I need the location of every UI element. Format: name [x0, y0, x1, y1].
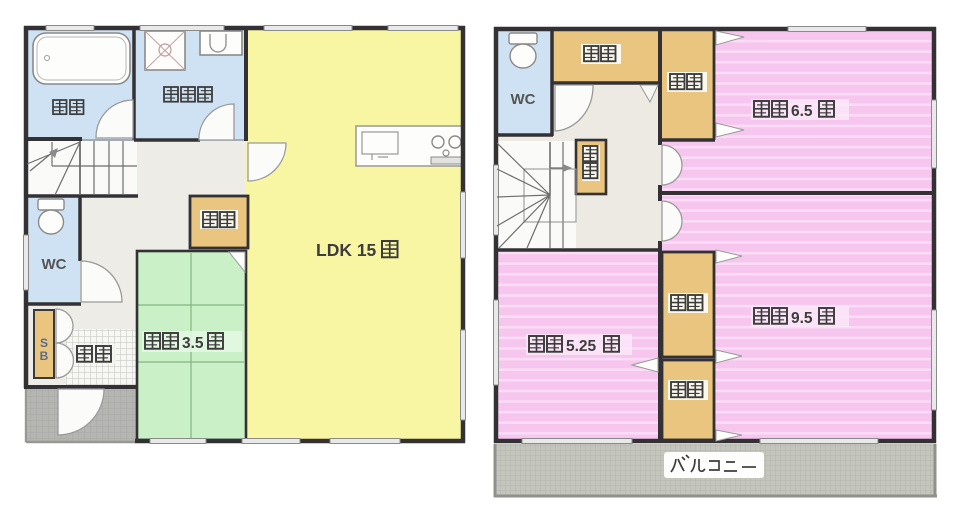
svg-text:9.5: 9.5 — [791, 310, 813, 327]
svg-text:WC: WC — [511, 91, 536, 108]
svg-text:5.25: 5.25 — [566, 338, 597, 355]
svg-text:B: B — [40, 349, 49, 363]
svg-text:3.5: 3.5 — [182, 335, 204, 352]
svg-text:WC: WC — [42, 256, 67, 273]
svg-text:S: S — [40, 336, 48, 350]
svg-text:6.5: 6.5 — [791, 103, 813, 120]
svg-text:LDK 15: LDK 15 — [316, 240, 377, 260]
